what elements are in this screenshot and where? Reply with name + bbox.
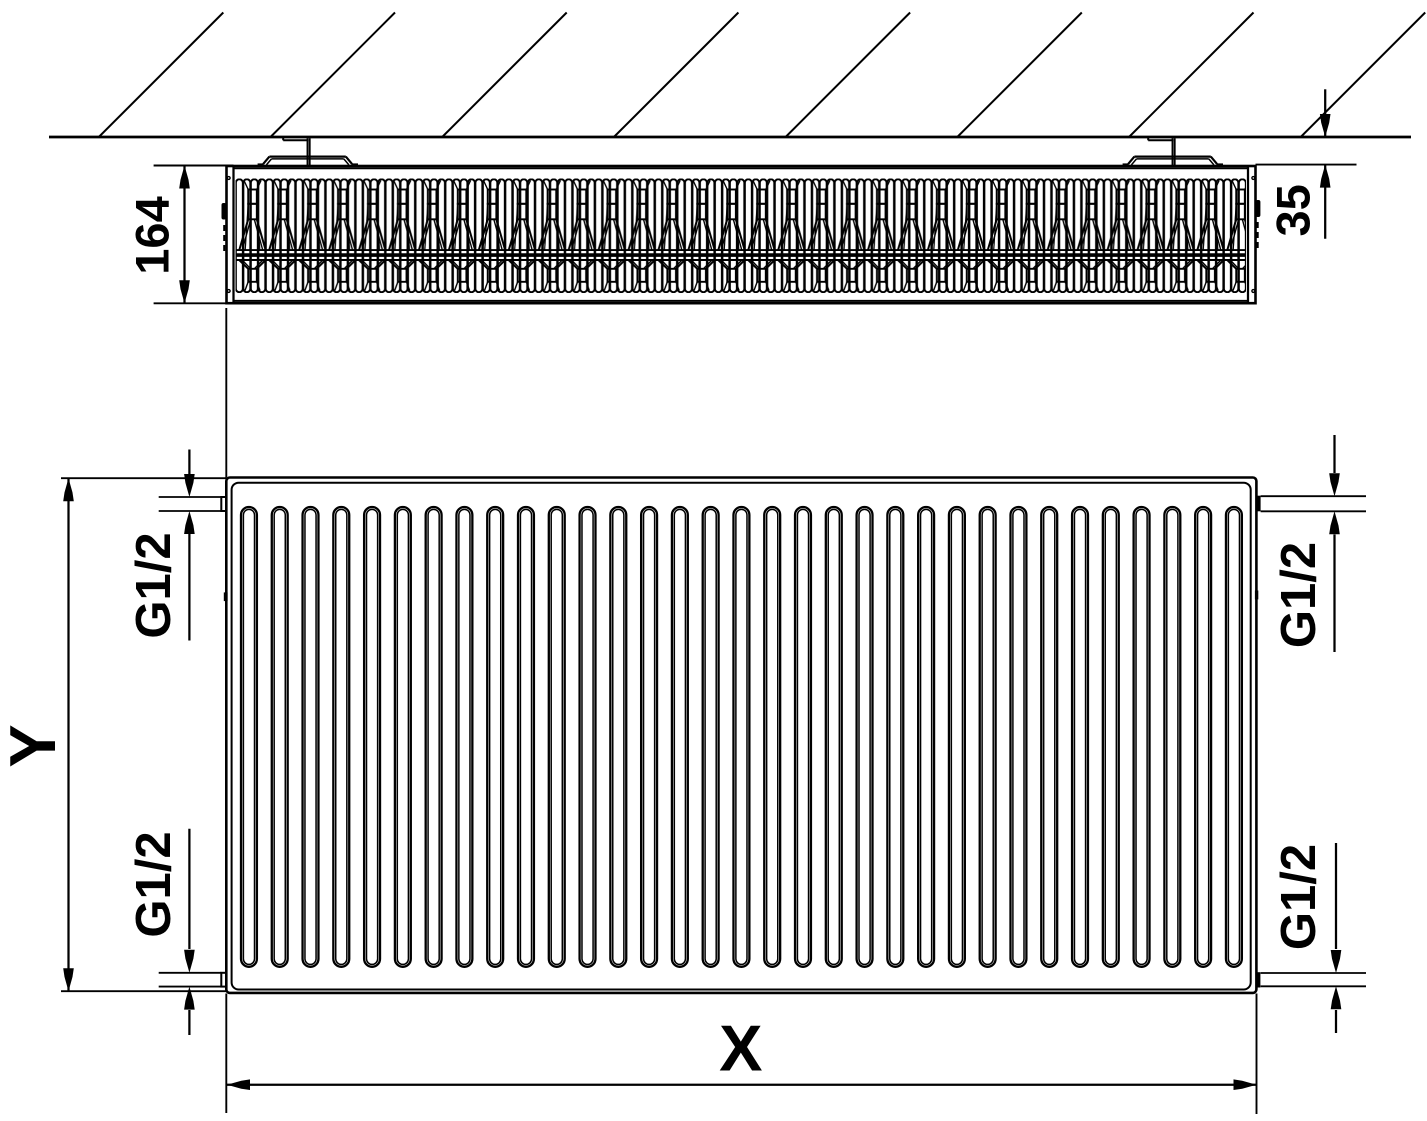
svg-text:X: X (719, 1012, 762, 1085)
svg-text:164: 164 (126, 196, 179, 274)
svg-text:G1/2: G1/2 (1272, 844, 1326, 950)
svg-text:G1/2: G1/2 (127, 532, 181, 638)
svg-text:G1/2: G1/2 (127, 831, 181, 937)
svg-text:G1/2: G1/2 (1272, 542, 1326, 648)
svg-text:35: 35 (1267, 184, 1320, 236)
svg-text:Y: Y (0, 724, 69, 767)
